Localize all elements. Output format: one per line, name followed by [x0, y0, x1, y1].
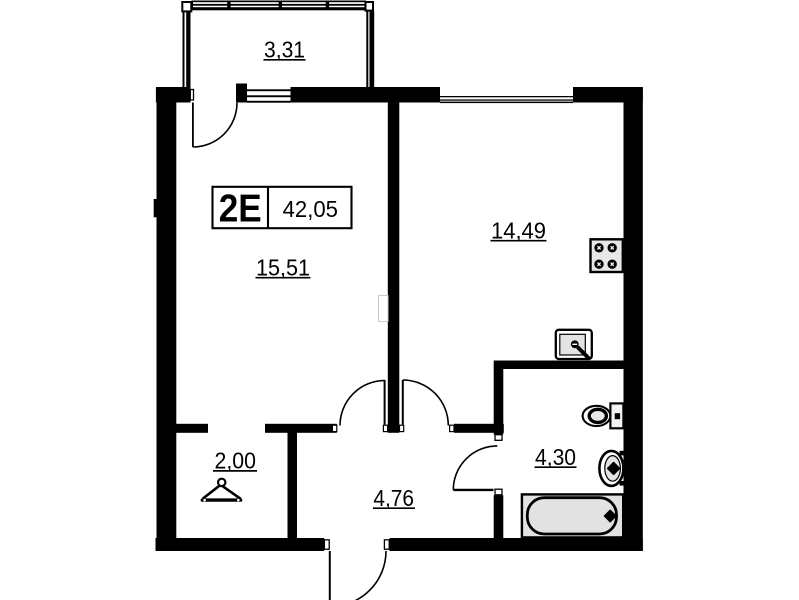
svg-text:2E: 2E [219, 188, 262, 231]
svg-text:2,00: 2,00 [215, 448, 256, 474]
svg-text:15,51: 15,51 [256, 255, 310, 281]
svg-text:42,05: 42,05 [283, 196, 338, 222]
svg-text:4,76: 4,76 [373, 485, 414, 511]
svg-text:14,49: 14,49 [491, 218, 546, 244]
svg-text:3,31: 3,31 [264, 37, 305, 63]
svg-text:4,30: 4,30 [535, 444, 576, 470]
